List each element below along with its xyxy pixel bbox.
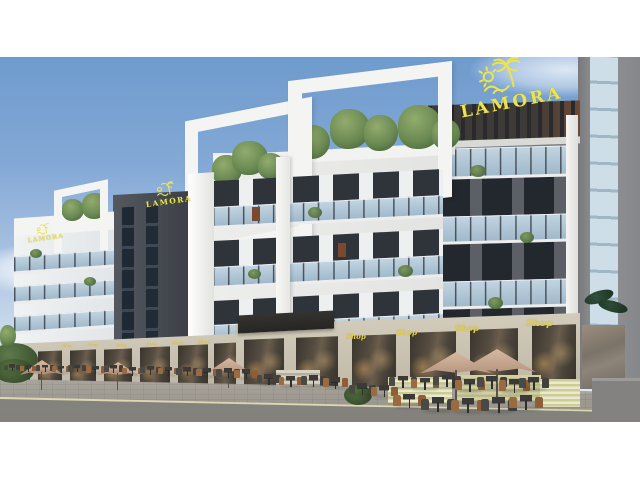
table-leg [437,402,439,412]
cafe-chair [158,368,163,375]
shop-sign-small: Shop [116,343,127,347]
balcony-plant [470,165,486,177]
table-leg [207,371,208,377]
cafe-chair [509,397,517,409]
cafe-chair [52,366,56,372]
architectural-render-photo: Shop Shop Shop Shop Shop Shop Shop Shop … [0,57,640,422]
shop-sign: Shop [396,329,417,337]
table-leg [469,383,471,391]
cafe-table-set [68,363,86,373]
white-facade-column [276,157,290,325]
balcony-row [440,278,578,310]
table-leg [12,367,13,371]
balcony-plant [488,297,503,309]
balcony-plant [84,277,96,286]
table-leg [187,370,188,376]
cafe-chair [451,400,459,412]
cafe-chair [481,399,490,411]
table-leg [268,378,269,385]
table-leg [168,370,169,376]
cafe-chair [279,377,285,385]
shop-sign-small: Shop [62,344,72,348]
cafe-chair [122,368,127,375]
balcony-plant [308,207,322,218]
cafe-chair [20,366,24,371]
facade-window-band [440,176,578,217]
table-leg [113,368,114,373]
cafe-table-set [20,364,37,373]
cafe-chair [542,378,549,388]
shop-sign: Shop [526,319,553,329]
shop-sign: Shop [346,333,366,340]
cafe-chair [393,395,401,406]
cafe-chair [216,369,222,377]
cafe-chair [323,378,329,387]
shop-sign: Shop [455,325,479,334]
table-leg [61,368,62,373]
cafe-chair [371,387,378,396]
cafe-table-set [4,363,21,372]
cafe-chair [4,365,8,370]
table-leg [246,373,247,379]
lamora-logo-text: LAMORA [144,195,195,209]
cafe-chair [455,380,462,390]
cafe-chair [234,370,240,378]
table-leg [28,368,29,372]
balcony-plant [248,269,261,279]
cafe-table-set [508,392,544,411]
table-leg [77,367,78,372]
table-leg [533,381,535,389]
cafe-table-set [86,364,106,374]
cafe-table-set [322,375,349,389]
cafe-chair [433,376,440,386]
shop-sign-small: Shop [172,341,184,345]
table-leg [150,369,151,375]
table-leg [384,390,385,398]
table-leg [424,382,426,390]
table-leg [446,379,448,387]
cafe-chair [176,368,181,375]
table-leg [402,380,404,388]
table-leg [409,399,411,408]
cafe-chair [499,380,507,391]
cafe-chair [68,365,72,371]
table-leg [362,388,363,396]
cafe-table-set [518,374,550,391]
cafe-table-set [234,367,258,380]
balcony-row [440,145,578,180]
table-leg [525,400,527,410]
table-leg [95,369,96,374]
table-leg [498,403,500,413]
cafe-chair [411,379,418,389]
cafe-chair [349,385,356,394]
table-leg [290,380,291,387]
render-canvas: Shop Shop Shop Shop Shop Shop Shop Shop … [0,0,640,480]
shop-sign-small: Shop [198,340,210,344]
cafe-chair [421,399,429,411]
table-leg [45,367,46,372]
shop-sign-small: Shop [146,342,157,346]
umbrella-pole [41,372,42,390]
cafe-chair [104,365,108,371]
balcony-row [440,213,578,245]
lamora-parapet-logo: LAMORA [24,220,68,259]
cafe-chair [535,397,543,409]
wood-accent-panel [338,243,346,257]
cafe-chair [257,375,263,383]
table-leg [335,381,336,388]
lamora-logo-text: LAMORA [26,233,66,245]
wood-accent-panel [252,207,260,221]
cafe-chair [477,377,484,387]
cafe-chair [519,378,526,388]
cafe-chair [140,367,145,374]
cafe-chair [36,365,40,371]
facade-window-band [440,241,578,282]
table-leg [132,370,133,376]
cafe-chair [301,376,307,385]
umbrella-pole [117,373,118,390]
low-boundary-wall [592,378,640,422]
balcony-plant [520,232,534,243]
table-leg [313,379,314,386]
balcony-plant [398,265,413,277]
table-leg [228,372,229,378]
cafe-chair [86,366,90,372]
table-leg [491,380,493,388]
lamora-tower-logo: LAMORA [141,178,196,227]
cafe-chair [196,369,201,376]
cafe-table-set [104,363,124,373]
cafe-chair [389,377,396,387]
table-leg [467,403,469,413]
shop-sign-small: Shop [88,343,98,347]
tower-window-strip [122,207,134,346]
